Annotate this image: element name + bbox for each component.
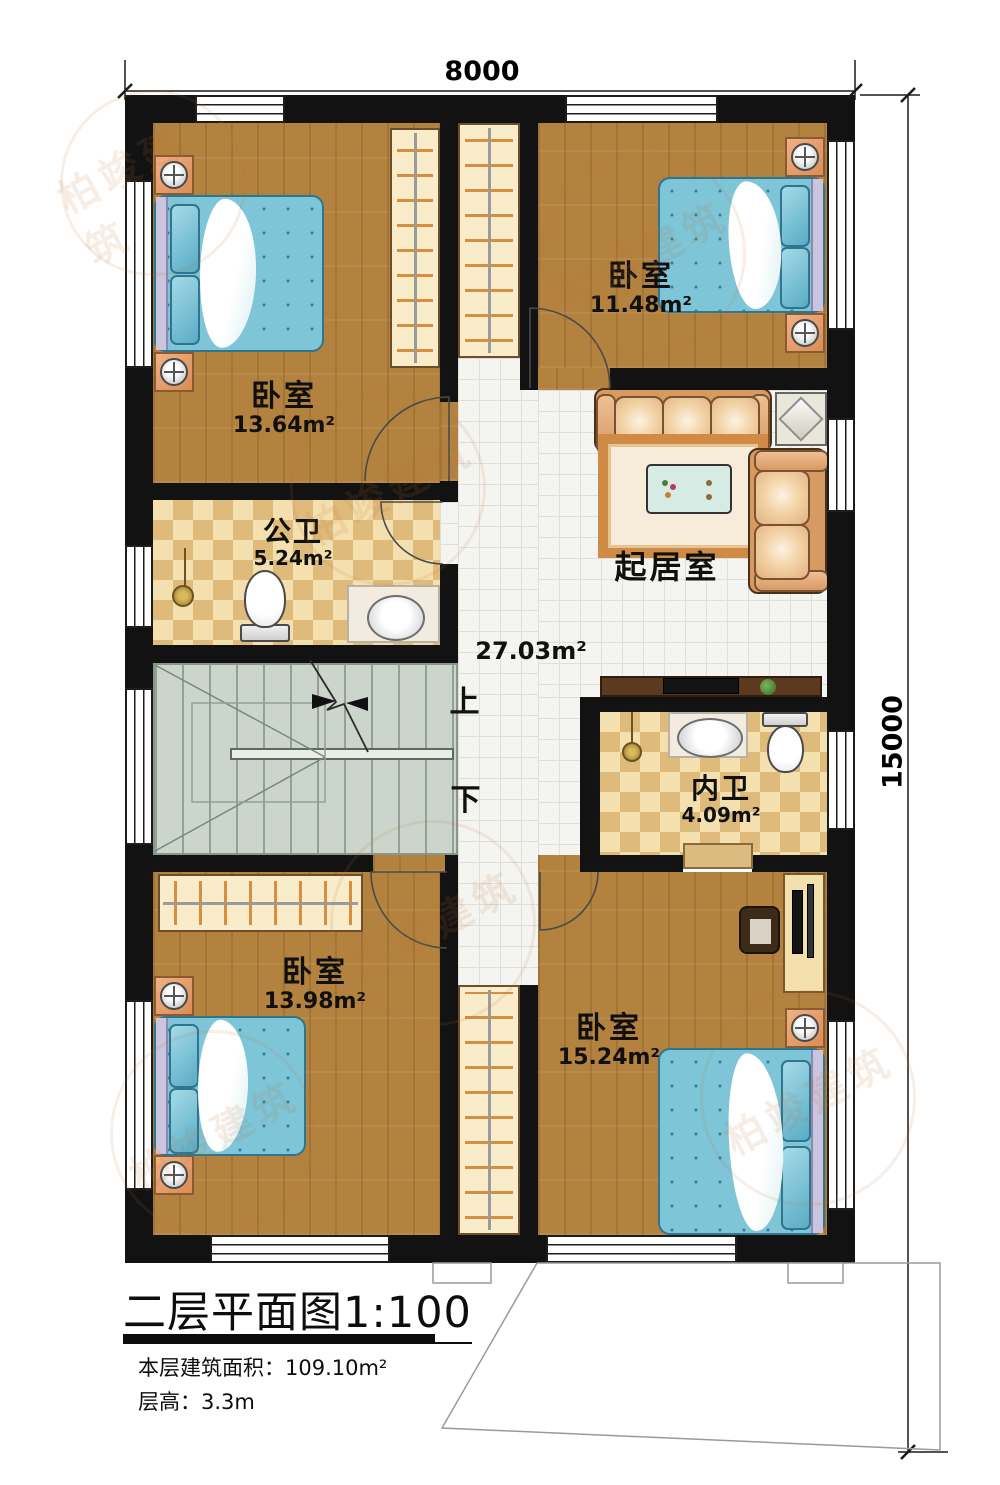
window	[827, 140, 855, 330]
sofa-two-seat	[748, 448, 827, 594]
dimension-height-label: 15000	[878, 695, 909, 789]
flower-decor	[662, 480, 668, 486]
window	[565, 95, 718, 123]
wall-interior	[125, 855, 373, 872]
hall-strip-floor	[538, 697, 580, 872]
room-label-bedroom-bottom-left: 卧室 13.98m²	[264, 956, 366, 1014]
inner-bath-door	[683, 843, 753, 869]
room-name: 卧室	[590, 260, 692, 294]
window	[827, 730, 855, 830]
floor-drain	[622, 742, 642, 762]
room-name: 卧室	[558, 1012, 660, 1046]
sofa-cushion	[754, 524, 810, 580]
table-lamp	[778, 396, 823, 441]
nightstand	[785, 313, 825, 353]
plant	[760, 679, 776, 695]
stair-up-text: 上	[450, 686, 483, 720]
wall-interior	[440, 123, 458, 402]
wall-interior	[600, 855, 683, 872]
room-label-bedroom-top-right: 卧室 11.48m²	[590, 260, 692, 318]
desk-chair	[739, 906, 780, 954]
corner-lamp-table	[775, 392, 827, 446]
room-area: 11.48m²	[590, 294, 692, 319]
room-area: 27.03m²	[475, 638, 586, 665]
room-label-bedroom-bottom-right: 卧室 15.24m²	[558, 1012, 660, 1070]
window	[210, 1235, 390, 1263]
pillow	[169, 1088, 199, 1154]
room-area: 13.98m²	[264, 990, 366, 1015]
wall-interior	[520, 368, 530, 390]
wall-interior	[125, 483, 458, 500]
stair-down-text: 下	[451, 784, 484, 818]
window	[827, 1020, 855, 1210]
sofa-cushion	[754, 470, 810, 526]
floor-plan-canvas: 8000 15000 卧室 13.64m² 卧室 11.48m² 公卫 5.24…	[0, 0, 1000, 1485]
tv	[663, 678, 739, 694]
bed-sheet	[196, 198, 260, 350]
pillow	[169, 1024, 199, 1088]
toilet	[244, 570, 286, 628]
coffee-table	[646, 464, 732, 514]
room-name: 公卫	[254, 516, 333, 547]
window	[125, 545, 153, 628]
wall-interior	[445, 855, 458, 872]
bedside-lamp	[791, 1014, 819, 1042]
bedside-lamp	[160, 982, 188, 1010]
window	[827, 418, 855, 512]
stair-handrail	[230, 748, 454, 760]
room-name: 卧室	[233, 380, 335, 414]
desk-accessory	[807, 884, 814, 958]
pillow	[780, 247, 810, 309]
roof-outline-below	[433, 1263, 940, 1450]
bed-headboard	[156, 197, 168, 350]
bed-sheet	[726, 180, 785, 311]
room-area: 5.24m²	[254, 547, 333, 569]
door-patch	[530, 368, 610, 390]
wardrobe-top-middle	[458, 123, 520, 358]
room-label-inner-bath: 内卫 4.09m²	[682, 773, 761, 827]
pillow	[170, 204, 200, 274]
wall-interior	[125, 645, 458, 663]
stair-up-label: 上	[450, 686, 483, 720]
pillow	[781, 1146, 811, 1230]
dimension-width-label: 8000	[444, 56, 519, 87]
bedside-lamp	[791, 143, 819, 171]
room-label-bedroom-top-left: 卧室 13.64m²	[233, 380, 335, 438]
toilet	[767, 725, 804, 773]
bed-headboard	[811, 179, 823, 311]
window	[195, 95, 285, 123]
wall-interior	[520, 985, 538, 1235]
bedside-lamp	[160, 358, 188, 386]
sofa-armrest	[754, 450, 829, 472]
nightstand	[785, 1008, 825, 1048]
wall-interior	[440, 872, 458, 1235]
desk-monitor	[792, 890, 803, 954]
wardrobe-bottom-middle	[458, 985, 520, 1235]
room-name: 卧室	[264, 956, 366, 990]
wardrobe-bedroom-top-left	[390, 128, 440, 368]
wardrobe-rod	[414, 133, 417, 363]
wall-interior	[580, 712, 600, 872]
wall-interior	[520, 123, 538, 390]
sink	[677, 718, 743, 758]
window	[125, 1000, 153, 1190]
room-area: 13.64m²	[233, 414, 335, 439]
wall-interior	[752, 855, 827, 872]
wardrobe-rod	[488, 128, 491, 353]
wardrobe-rod	[488, 990, 491, 1230]
room-label-public-bath: 公卫 5.24m²	[254, 516, 333, 570]
bed-sheet	[195, 1019, 252, 1153]
nightstand	[154, 155, 194, 195]
nightstand	[154, 1155, 194, 1195]
bathroom-vanity	[347, 585, 440, 643]
chair-seat	[750, 919, 771, 944]
room-label-living: 起居室	[614, 550, 719, 586]
stair-down-label: 下	[451, 784, 484, 818]
bed-bottom-left	[154, 1016, 306, 1156]
door-patch	[440, 397, 458, 481]
nightstand	[154, 976, 194, 1016]
desk	[783, 873, 825, 993]
door-patch	[373, 855, 445, 872]
room-area: 4.09m²	[682, 804, 761, 826]
floor-area-line: 本层建筑面积：109.10m²	[138, 1352, 387, 1382]
bedside-lamp	[160, 1161, 188, 1189]
bed-headboard	[156, 1018, 168, 1154]
wall-interior	[580, 697, 827, 712]
corridor-floor	[458, 358, 538, 985]
window	[125, 688, 153, 845]
floor-drain	[172, 585, 194, 607]
wardrobe-rod	[163, 902, 358, 905]
title-underline-bar	[123, 1334, 435, 1343]
room-name: 内卫	[682, 773, 761, 804]
nightstand	[785, 137, 825, 177]
bathroom-vanity	[668, 712, 748, 758]
bed-bottom-right	[658, 1048, 825, 1235]
bed-sheet	[726, 1052, 786, 1232]
wall-interior	[610, 368, 827, 390]
pillow	[170, 275, 200, 345]
pillow	[780, 185, 810, 247]
room-area: 15.24m²	[558, 1046, 660, 1071]
bedside-lamp	[160, 161, 188, 189]
window	[546, 1235, 737, 1263]
living-area-label: 27.03m²	[475, 638, 586, 665]
bed-headboard	[811, 1050, 823, 1233]
sink	[367, 595, 425, 641]
floor-drain-stem	[631, 712, 633, 744]
wardrobe-bedroom-bottom-left	[158, 874, 363, 932]
bedside-lamp	[791, 319, 819, 347]
pillow	[781, 1060, 811, 1142]
floor-drain-stem	[184, 548, 186, 588]
room-name: 起居室	[614, 550, 719, 586]
cups	[706, 480, 712, 486]
bed-top-left	[154, 195, 324, 352]
door-patch	[440, 502, 458, 564]
window	[125, 180, 153, 368]
floor-height-line: 层高：3.3m	[138, 1386, 255, 1416]
nightstand	[154, 352, 194, 392]
